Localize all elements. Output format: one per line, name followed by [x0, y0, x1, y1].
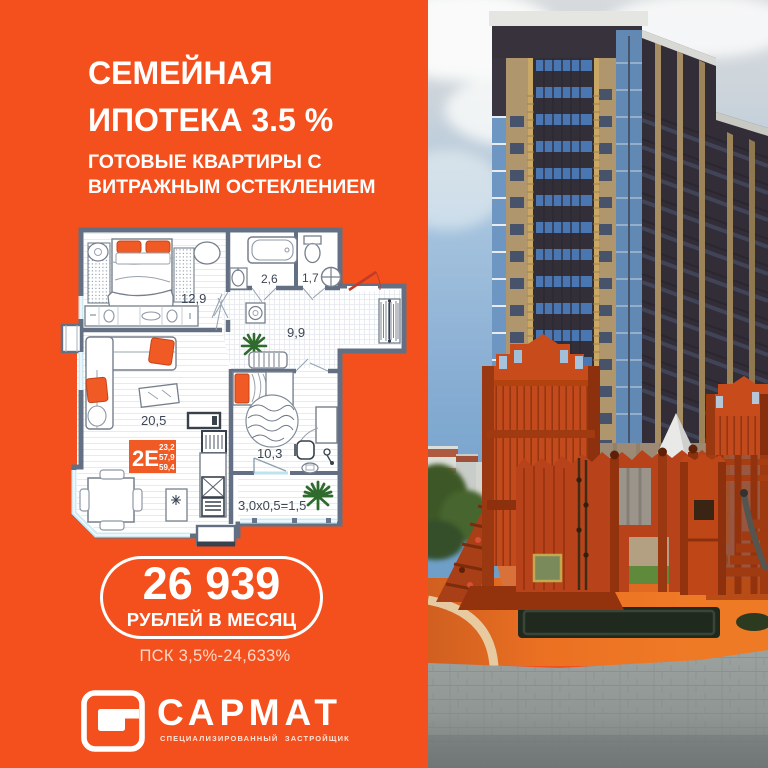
- svg-text:3,0х0,5=1,5: 3,0х0,5=1,5: [238, 498, 306, 513]
- svg-text:2Е: 2Е: [132, 446, 159, 471]
- svg-text:57,9: 57,9: [159, 453, 175, 462]
- svg-text:1,7: 1,7: [302, 271, 319, 285]
- svg-text:59,4: 59,4: [159, 463, 175, 472]
- svg-text:12,9: 12,9: [181, 291, 206, 306]
- svg-text:9,9: 9,9: [287, 325, 305, 340]
- svg-text:10,3: 10,3: [257, 446, 282, 461]
- svg-text:23,2: 23,2: [159, 443, 175, 452]
- svg-text:2,6: 2,6: [261, 272, 278, 286]
- svg-text:20,5: 20,5: [141, 413, 166, 428]
